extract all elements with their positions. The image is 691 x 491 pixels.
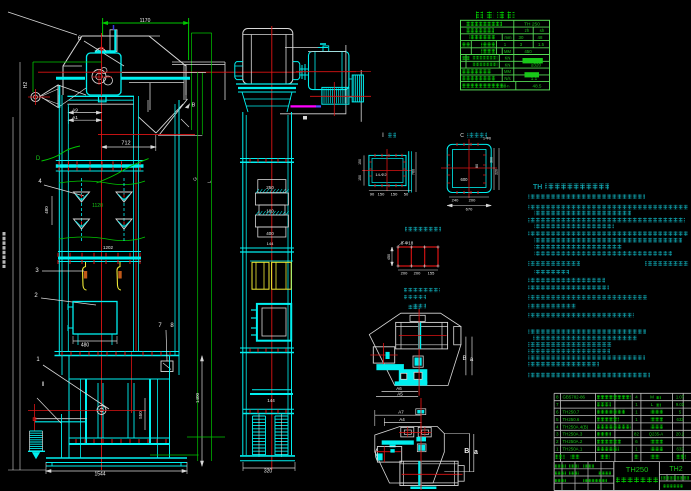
svg-text:144: 144 xyxy=(267,241,274,246)
svg-text:TH 250: TH 250 xyxy=(524,22,540,28)
svg-text:480: 480 xyxy=(81,343,90,349)
svg-text:≥320: ≥320 xyxy=(531,62,542,67)
svg-text:14-Φ2: 14-Φ2 xyxy=(375,172,387,177)
svg-text:150: 150 xyxy=(358,175,362,181)
svg-text:5: 5 xyxy=(556,417,559,422)
svg-text:Q235-A: Q235-A xyxy=(649,432,664,437)
svg-text:TH250: TH250 xyxy=(626,465,649,474)
svg-text:a: a xyxy=(474,449,478,456)
svg-text:MM: MM xyxy=(504,69,511,74)
svg-text:8-Φ18: 8-Φ18 xyxy=(401,241,414,246)
svg-text:550: 550 xyxy=(138,411,143,419)
svg-text:1.07: 1.07 xyxy=(676,395,685,400)
svg-text:450: 450 xyxy=(387,254,391,260)
svg-text:zh: zh xyxy=(525,28,530,33)
svg-text:1544: 1544 xyxy=(94,472,105,478)
svg-text:250: 250 xyxy=(266,185,274,190)
svg-text:TH250A.3: TH250A.3 xyxy=(563,432,583,437)
svg-text:KN: KN xyxy=(505,62,511,67)
svg-text:GB5782-86: GB5782-86 xyxy=(563,395,586,400)
svg-text:200: 200 xyxy=(469,198,476,203)
svg-text:450: 450 xyxy=(524,49,532,54)
svg-text:1: 1 xyxy=(556,447,559,452)
svg-text:240: 240 xyxy=(452,198,459,203)
svg-text:mm: mm xyxy=(505,35,512,40)
svg-text:80: 80 xyxy=(475,164,479,168)
svg-text:1170: 1170 xyxy=(140,18,151,24)
svg-text:A6: A6 xyxy=(396,386,402,391)
svg-text:C: C xyxy=(460,133,464,139)
svg-text:1.5: 1.5 xyxy=(538,42,545,47)
svg-text:B: B xyxy=(462,356,466,362)
svg-text:200: 200 xyxy=(414,271,421,276)
svg-text:A5: A5 xyxy=(397,392,403,397)
svg-text:200: 200 xyxy=(401,271,408,276)
svg-text:1400: 1400 xyxy=(195,392,200,403)
svg-text:220: 220 xyxy=(495,169,499,175)
svg-text:50: 50 xyxy=(404,192,409,197)
svg-text:TH250A.4(B): TH250A.4(B) xyxy=(563,424,589,429)
svg-text:1120: 1120 xyxy=(92,203,103,209)
svg-text:20.2: 20.2 xyxy=(676,432,685,437)
svg-text:480: 480 xyxy=(44,206,49,214)
svg-text:150: 150 xyxy=(378,192,385,197)
svg-text:1.1: 1.1 xyxy=(531,76,538,81)
svg-text:400: 400 xyxy=(266,231,274,236)
svg-text:sh: sh xyxy=(540,28,545,33)
svg-text:600: 600 xyxy=(461,177,469,182)
svg-text:48.5: 48.5 xyxy=(533,83,542,88)
svg-text:A7: A7 xyxy=(398,410,404,415)
svg-text:H2: H2 xyxy=(23,82,29,89)
svg-text:712: 712 xyxy=(121,141,130,147)
svg-text:MM: MM xyxy=(504,49,511,54)
svg-text:632: 632 xyxy=(677,417,685,422)
svg-text:‖: ‖ xyxy=(42,382,44,388)
svg-text:90: 90 xyxy=(370,192,375,197)
svg-text:7: 7 xyxy=(556,402,559,407)
svg-text:760: 760 xyxy=(412,169,416,175)
svg-text:D: D xyxy=(36,156,41,162)
svg-text:48: 48 xyxy=(538,35,543,40)
svg-text:/mi·h: /mi·h xyxy=(501,83,510,88)
svg-text:2: 2 xyxy=(556,439,559,444)
svg-text:670: 670 xyxy=(466,207,473,212)
svg-text:300: 300 xyxy=(490,157,494,163)
svg-text:4: 4 xyxy=(556,424,559,429)
svg-text:144: 144 xyxy=(267,398,275,403)
svg-text:1202: 1202 xyxy=(103,245,114,250)
svg-text:B: B xyxy=(192,103,196,109)
svg-text:G: G xyxy=(193,177,198,181)
svg-text:320: 320 xyxy=(264,469,273,475)
svg-text:TH: TH xyxy=(533,184,542,191)
svg-text:1-Φ6: 1-Φ6 xyxy=(483,137,491,141)
svg-text:TH250A.2: TH250A.2 xyxy=(563,439,583,444)
svg-text:9.03: 9.03 xyxy=(676,402,685,407)
svg-text:B: B xyxy=(464,448,469,455)
svg-text:KN: KN xyxy=(505,56,511,61)
svg-text:TH250.7: TH250.7 xyxy=(563,410,580,415)
svg-text:8: 8 xyxy=(556,395,559,400)
svg-text:TH250.6: TH250.6 xyxy=(563,417,580,422)
svg-text:6: 6 xyxy=(556,410,559,415)
svg-text:82: 82 xyxy=(634,432,639,437)
svg-text:632: 632 xyxy=(677,447,685,452)
svg-text:N/s: N/s xyxy=(504,76,510,81)
svg-text:M: M xyxy=(650,395,654,400)
svg-text:150: 150 xyxy=(391,192,398,197)
svg-text:TH2: TH2 xyxy=(669,466,682,473)
svg-text:150: 150 xyxy=(358,159,362,165)
svg-text:3: 3 xyxy=(556,432,559,437)
svg-text:A4: A4 xyxy=(399,417,405,422)
svg-text:TH250A.1: TH250A.1 xyxy=(563,447,583,452)
svg-text:L: L xyxy=(651,402,654,407)
svg-text:155: 155 xyxy=(428,271,435,276)
svg-text:30: 30 xyxy=(519,35,524,40)
